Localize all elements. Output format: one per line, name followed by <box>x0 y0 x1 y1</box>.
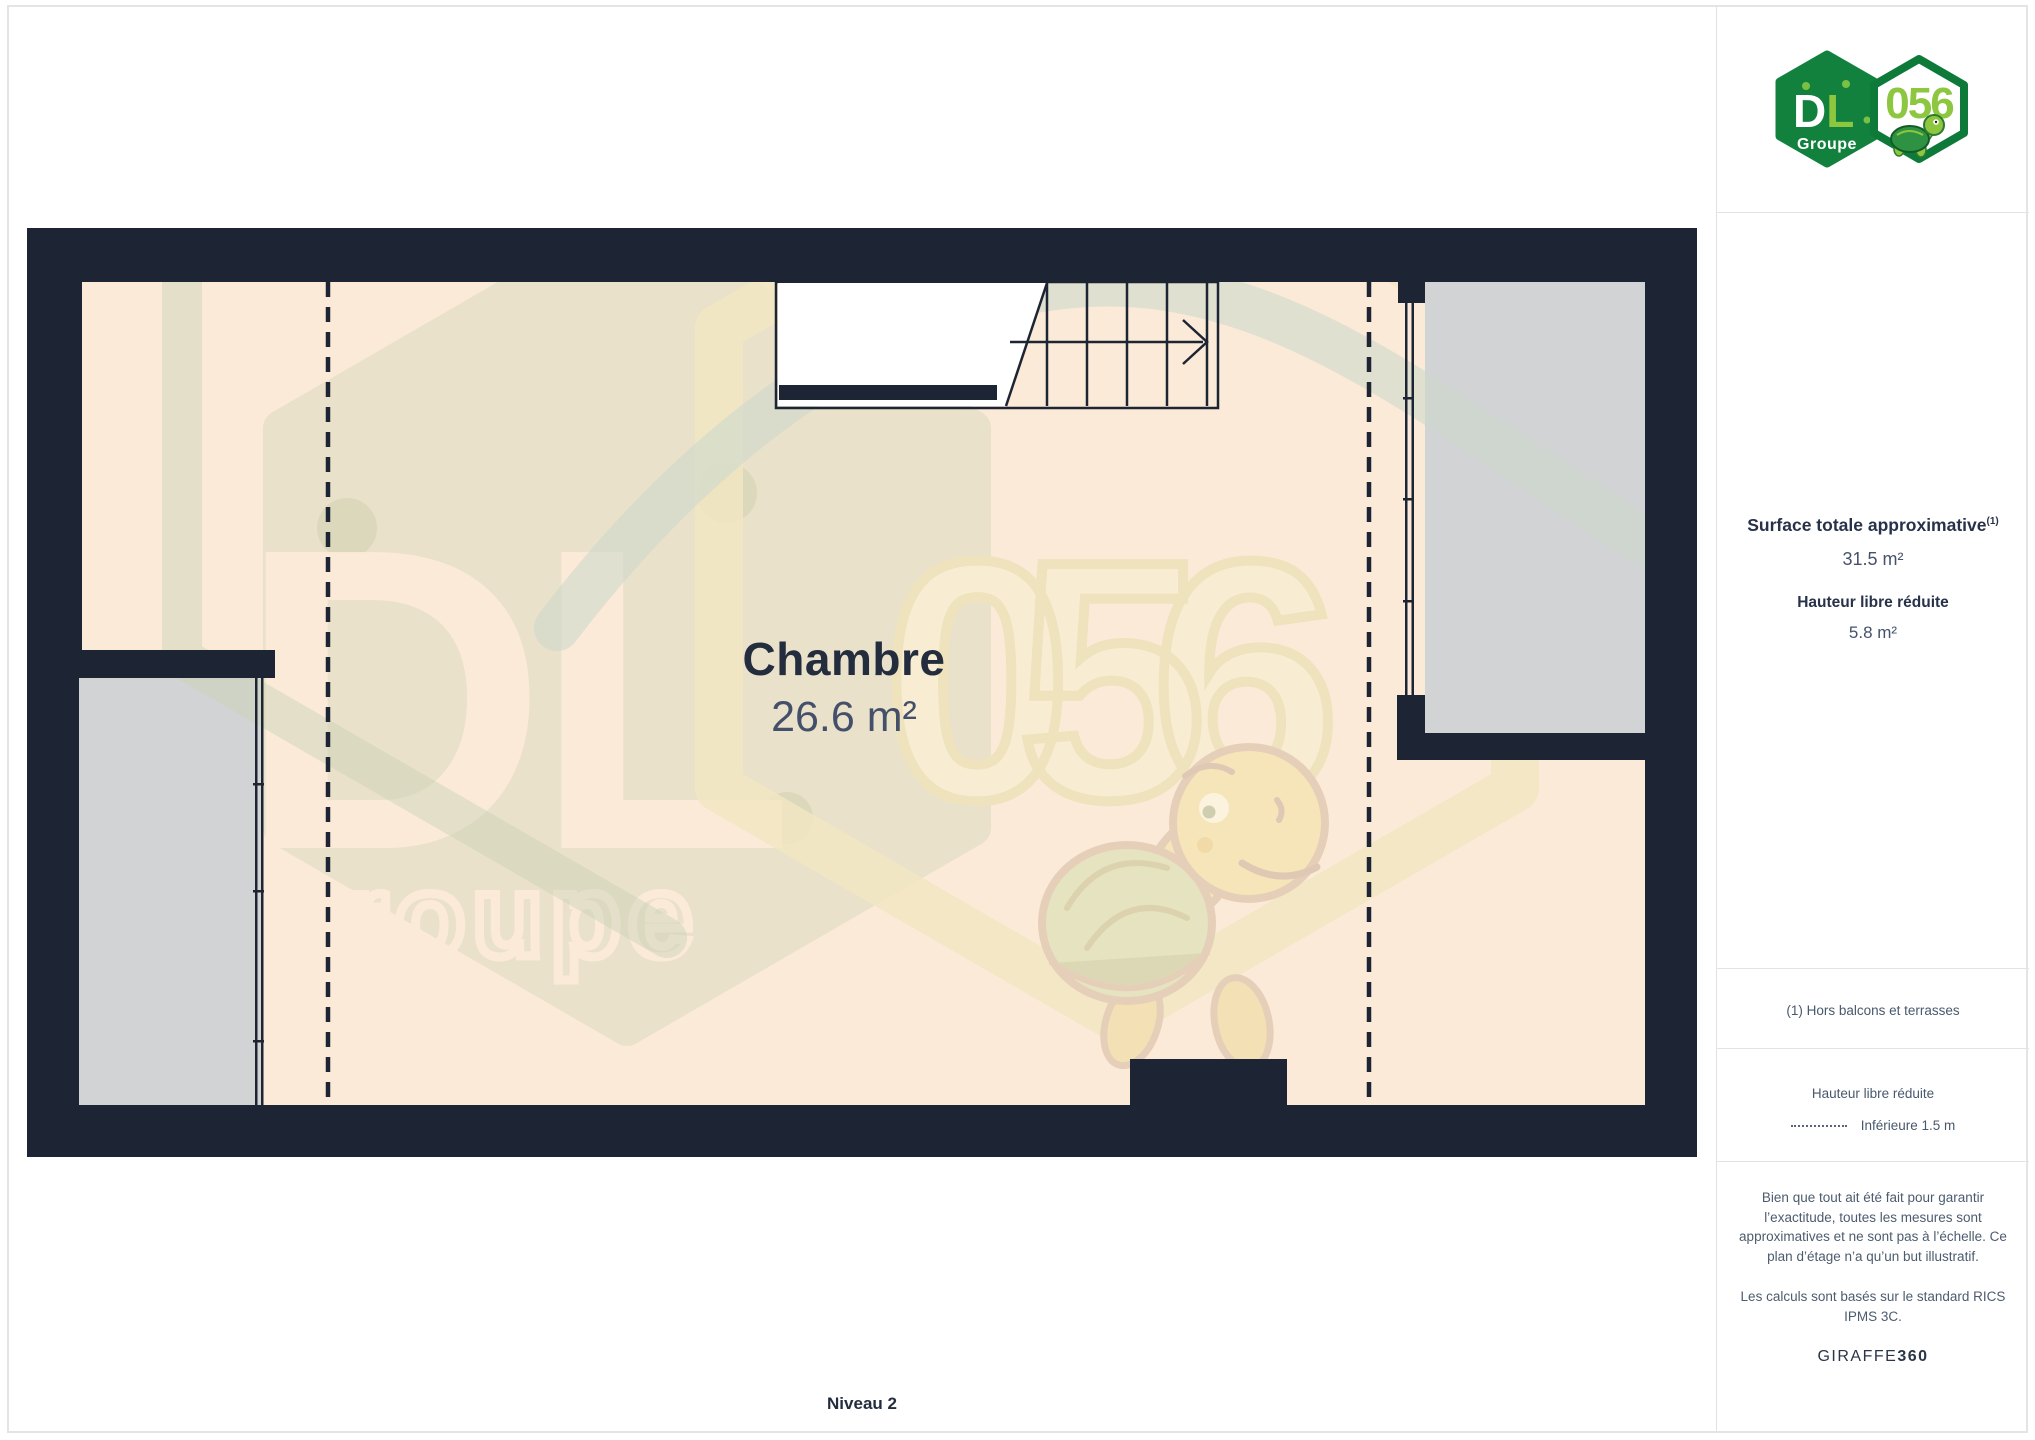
surface-total-value: 31.5 m² <box>1717 547 2029 571</box>
wall-stub-right-top <box>1398 282 1425 303</box>
surface-footnote-marker: (1) <box>1987 516 1999 527</box>
reduced-height-label: Hauteur libre réduite <box>1717 593 2029 613</box>
giraffe360-brand: GIRAFFE360 <box>1717 1348 2029 1366</box>
wall-band-right <box>1425 733 1697 760</box>
void-zone-left <box>79 678 263 1105</box>
disclaimer-paragraph-2: Les calculs sont basés sur le standard R… <box>1732 1287 2014 1326</box>
room-name: Chambre <box>743 632 946 686</box>
footnote: (1) Hors balcons et terrasses <box>1717 968 2029 1053</box>
legend-dash-label: Inférieure 1.5 m <box>1861 1118 1956 1133</box>
dl-groupe-056-logo: DL Groupe 056 <box>1773 50 1973 168</box>
wall-stub-bottom <box>1130 1059 1287 1107</box>
logo-dl-text: DL <box>1793 85 1854 137</box>
legend-row: Inférieure 1.5 m <box>1717 1118 2029 1133</box>
reduced-height-value: 5.8 m² <box>1717 622 2029 644</box>
wall-stub-right-bottom <box>1397 695 1425 760</box>
surface-total-label-text: Surface totale approximative <box>1747 515 1986 535</box>
surface-total-label: Surface totale approximative(1) <box>1717 511 2029 536</box>
legend: Hauteur libre réduite Inférieure 1.5 m <box>1717 1053 2029 1166</box>
logo-dot <box>1842 80 1850 88</box>
brand-text-bold: 360 <box>1897 1348 1928 1365</box>
footnote-text: (1) Hors balcons et terrasses <box>1786 1003 1959 1018</box>
info-sidebar: DL Groupe 056 Surface totale ap <box>1716 5 2029 1432</box>
sidebar-divider <box>1717 212 2029 213</box>
legend-title: Hauteur libre réduite <box>1717 1086 2029 1101</box>
level-label: Niveau 2 <box>827 1394 897 1414</box>
floor-plan-page: DL 056 Groupe <box>0 0 2035 1440</box>
surface-summary: Surface totale approximative(1) 31.5 m² … <box>1717 511 2029 644</box>
disclaimer: Bien que tout ait été fait pour garantir… <box>1717 1188 2029 1366</box>
logo-dot <box>1864 117 1871 124</box>
logo-groupe-text: Groupe <box>1797 136 1857 153</box>
room-label: Chambre 26.6 m² <box>743 632 946 742</box>
brand-text: GIRAFFE <box>1817 1348 1897 1365</box>
disclaimer-paragraph-1: Bien que tout ait été fait pour garantir… <box>1732 1188 2014 1266</box>
room-area: 26.6 m² <box>743 693 946 742</box>
dashed-line-swatch <box>1791 1125 1847 1127</box>
logo-dot <box>1802 82 1810 90</box>
wall-stub-left <box>79 650 275 678</box>
stair-landing-edge <box>779 385 997 400</box>
